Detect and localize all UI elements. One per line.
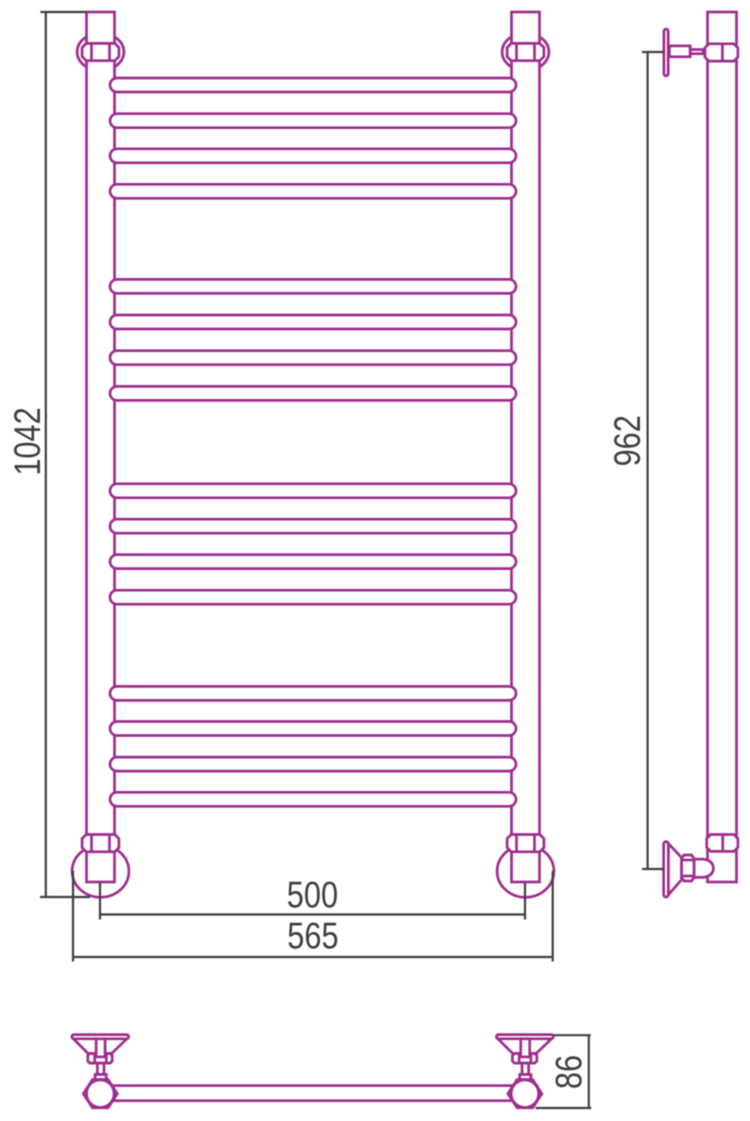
svg-text:500: 500 <box>287 875 338 916</box>
svg-text:86: 86 <box>549 1055 590 1089</box>
svg-text:962: 962 <box>607 415 648 466</box>
svg-text:565: 565 <box>287 916 338 957</box>
svg-text:1042: 1042 <box>7 407 48 475</box>
